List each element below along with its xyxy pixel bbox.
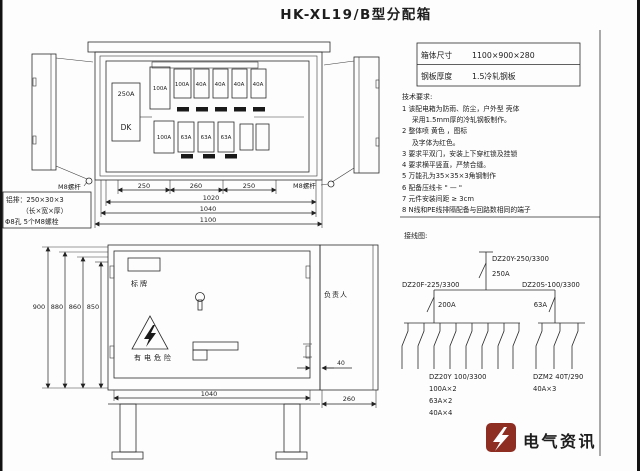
cabinet-roof (88, 42, 330, 52)
height-dimensions: 900 880 860 850 (32, 247, 108, 388)
hazard-text: 有电危险 (134, 353, 174, 362)
left-group-rating-1: 100A×2 (429, 385, 457, 393)
stand-foot (276, 452, 307, 459)
dim-seg3: 250 (243, 182, 255, 190)
right-branch-breaker-symbol (549, 297, 555, 312)
breaker-label: 63A (181, 135, 192, 141)
dim-seg2: 260 (190, 182, 202, 190)
breaker-label: 63A (221, 135, 232, 141)
dim-seg1: 250 (138, 182, 150, 190)
depth-dimension: 260 (322, 390, 376, 408)
tech-note-line: 2 整体喷 黄色 ，图标 (402, 126, 467, 135)
electric-hazard-sign (132, 316, 168, 349)
drawing-sheet: HK-XL19/B型分配箱 250A DK 100A 100A 40A 40A … (0, 0, 640, 471)
left-branch-rating: 200A (438, 301, 456, 309)
dim-1040: 1040 (200, 205, 217, 213)
main-breaker-model: DZ20Y-250/3300 (492, 255, 549, 263)
left-group-rating-2: 63A×2 (429, 397, 452, 405)
breaker-label: 100A (153, 86, 167, 92)
front-outer-frame (108, 245, 320, 390)
stand-leg (120, 404, 136, 452)
tech-notes: 技术要求: 1 该配电箱为防雨、防尘，户外型 壳体 采用1.5mm厚的冷轧钢板制… (400, 92, 600, 217)
main-breaker-symbol (479, 263, 486, 278)
stand-foot (112, 452, 143, 459)
tech-note-line: 5 万能孔为35×35×3角钢制作 (402, 171, 496, 180)
left-group-breakers (402, 323, 519, 369)
right-group-breakers (536, 323, 578, 369)
schematic-canvas: HK-XL19/B型分配箱 250A DK 100A 100A 40A 40A … (0, 0, 640, 471)
upper-cabinet-top-view: 250A DK 100A 100A 40A 40A 40A 40A 100A 6… (3, 42, 379, 228)
watermark: 电气资讯 (486, 423, 597, 452)
hinge-callout-right: M8螺杆 (293, 181, 316, 190)
breaker-label: 40A (215, 82, 226, 88)
tech-note-line: 8 N线和PE线排隔配备与回路数相同的端子 (402, 205, 531, 214)
wiring-diagram: 接线图: DZ20Y-250/3300 250A DZ20F-225/3300 … (402, 231, 585, 417)
leader-line (84, 182, 87, 186)
dim-860: 860 (69, 303, 81, 311)
gap-dimension: 40 (297, 360, 352, 368)
stand-leg (284, 404, 300, 452)
left-door-open (32, 54, 93, 179)
lightning-icon (144, 325, 156, 347)
keyhole-lock (196, 293, 205, 311)
breaker-label: 100A (175, 82, 189, 88)
cabinet-stand (112, 404, 307, 459)
note-line-1: 铝排：250×30×3 (6, 195, 64, 204)
tech-note-line: 1 该配电箱为防雨、防尘，户外型 壳体 (402, 104, 520, 113)
door-hinge (110, 346, 114, 358)
responsible-label: 负责人 (324, 290, 348, 299)
dim-850: 850 (87, 303, 99, 311)
dim-1040-front: 1040 (201, 390, 218, 398)
tech-note-line: 6 配备压线卡 " — " (402, 183, 462, 192)
right-branch-model: DZ20S-100/3300 (522, 281, 580, 289)
right-door-open (324, 57, 379, 182)
spec-label-steel: 钢板厚度 (421, 71, 452, 81)
tech-notes-heading: 技术要求: (402, 92, 432, 101)
hinge-callout-left: M8螺杆 (58, 182, 81, 191)
tech-note-line: 3 要求平双门，安装上下穿杠锁及挂锁 (402, 149, 517, 158)
cabinet-body-outer (95, 52, 322, 180)
breaker-label: 40A (234, 82, 245, 88)
upper-dimensions: 250 260 250 1020 1040 1100 (95, 180, 322, 228)
door-hinge (306, 346, 310, 358)
nameplate-rect (128, 258, 160, 271)
breaker-label: 40A (253, 82, 264, 88)
busbar-terminals-top (177, 107, 265, 112)
tech-note-line: 7 元件安装间距 ≥ 3cm (402, 194, 474, 203)
busbar-terminals-bottom (181, 154, 237, 159)
tech-note-line: 及字体为红色。 (412, 138, 460, 147)
door-hinge (306, 266, 310, 278)
hinge-bolt-right (328, 181, 334, 187)
note-line-3: Φ8孔 5个M8螺栓 (5, 217, 59, 226)
cabinet-front-view: 标牌 有电危险 负责人 40 (32, 245, 378, 459)
main-switch-label: DK (121, 123, 133, 132)
spec-table: 箱体尺寸 1100×900×280 钢板厚度 1.5冷轧钢板 (417, 43, 580, 86)
left-branch-breaker-symbol (427, 297, 434, 312)
breaker-label: 63A (201, 135, 212, 141)
right-group-rating: 40A×3 (533, 385, 556, 393)
busbar-note-box: 铝排：250×30×3 （长×宽×厚） Φ8孔 5个M8螺栓 (3, 192, 91, 228)
spare-block (240, 124, 253, 150)
main-breaker-rating: 250A (492, 270, 510, 278)
dim-880: 880 (51, 303, 63, 311)
left-group-model: DZ20Y 100/3300 (429, 373, 486, 381)
spec-value-steel: 1.5冷轧钢板 (472, 71, 516, 81)
breaker-label: 100A (157, 135, 171, 141)
dim-40: 40 (337, 360, 345, 367)
tech-note-line: 4 要求横平竖直，严禁合缝。 (402, 160, 490, 169)
left-branch-model: DZ20F-225/3300 (402, 281, 459, 289)
door-hinge (110, 266, 114, 278)
watermark-text: 电气资讯 (523, 432, 597, 451)
right-group-model: DZM2 40T/290 (533, 373, 583, 381)
dim-260: 260 (343, 395, 355, 403)
hinge-bolt-left (86, 178, 92, 184)
wiring-heading: 接线图: (404, 231, 427, 240)
dim-1020: 1020 (203, 194, 220, 202)
main-switch-rating: 250A (118, 90, 135, 98)
tech-note-line: 采用1.5mm厚的冷轧钢板制作。 (412, 115, 511, 124)
front-width-dimension: 1040 (108, 390, 320, 404)
right-branch-rating: 63A (534, 301, 548, 309)
door-handle (193, 342, 238, 360)
spec-label-size: 箱体尺寸 (421, 50, 452, 60)
left-group-rating-3: 40A×4 (429, 409, 452, 417)
dim-900: 900 (33, 303, 45, 311)
dim-1100: 1100 (200, 216, 217, 224)
left-edge-strip (0, 0, 3, 471)
spare-block (256, 124, 269, 150)
breaker-label: 40A (196, 82, 207, 88)
spec-value-size: 1100×900×280 (472, 51, 535, 60)
nameplate-label: 标牌 (131, 279, 149, 288)
page-title: HK-XL19/B型分配箱 (280, 6, 432, 23)
note-line-2: （长×宽×厚） (22, 206, 67, 215)
